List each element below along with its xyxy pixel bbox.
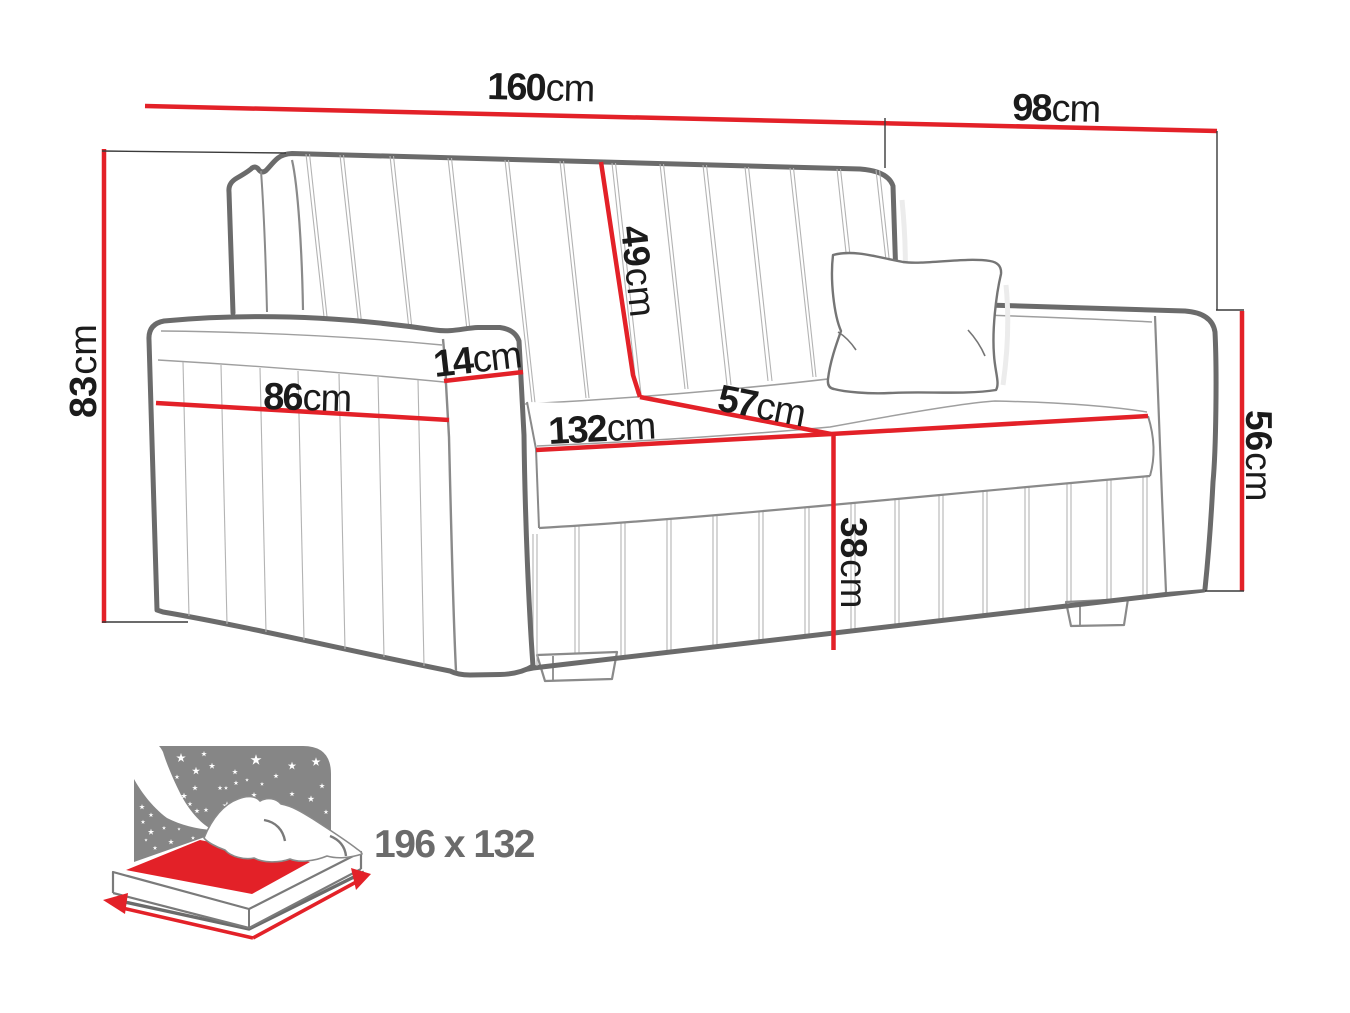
svg-text:83cm: 83cm: [63, 324, 105, 418]
svg-text:132cm: 132cm: [547, 405, 656, 453]
svg-text:38cm: 38cm: [833, 517, 874, 608]
svg-text:160cm: 160cm: [487, 66, 595, 110]
svg-text:98cm: 98cm: [1012, 87, 1101, 131]
svg-text:56cm: 56cm: [1238, 410, 1279, 501]
svg-text:196 x 132: 196 x 132: [374, 823, 535, 866]
svg-text:86cm: 86cm: [263, 376, 352, 420]
